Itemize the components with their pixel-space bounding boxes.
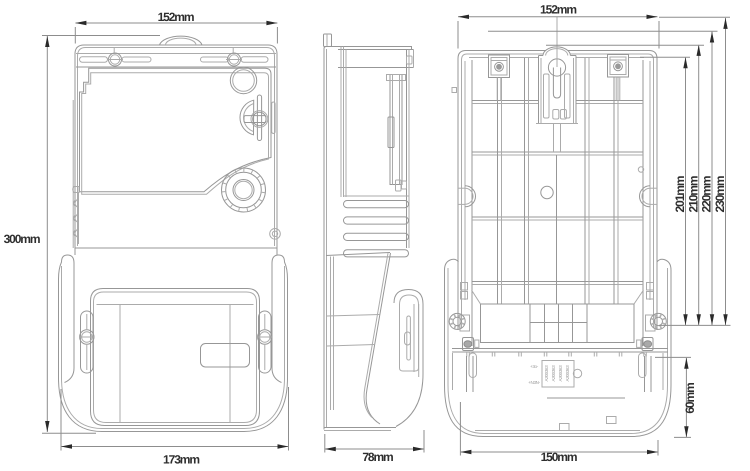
svg-text:152mm: 152mm xyxy=(158,10,194,24)
svg-text:173mm: 173mm xyxy=(163,452,199,466)
svg-text:201mm: 201mm xyxy=(673,176,687,212)
svg-text:60mm: 60mm xyxy=(683,383,697,414)
svg-text:A300363: A300363 xyxy=(565,365,570,382)
svg-text:+3o-: +3o- xyxy=(530,364,539,369)
svg-text:210mm: 210mm xyxy=(686,176,700,212)
svg-text:300mm: 300mm xyxy=(4,232,40,246)
svg-text:78mm: 78mm xyxy=(362,450,393,464)
svg-text:A300363: A300363 xyxy=(551,365,556,382)
svg-text:A300363: A300363 xyxy=(558,365,563,382)
svg-text:A300363: A300363 xyxy=(544,365,549,382)
svg-text:152mm: 152mm xyxy=(540,2,576,16)
svg-text:150mm: 150mm xyxy=(541,450,577,464)
svg-text:+N3N-: +N3N- xyxy=(528,380,540,385)
svg-text:230mm: 230mm xyxy=(713,176,727,212)
svg-text:220mm: 220mm xyxy=(700,176,714,212)
